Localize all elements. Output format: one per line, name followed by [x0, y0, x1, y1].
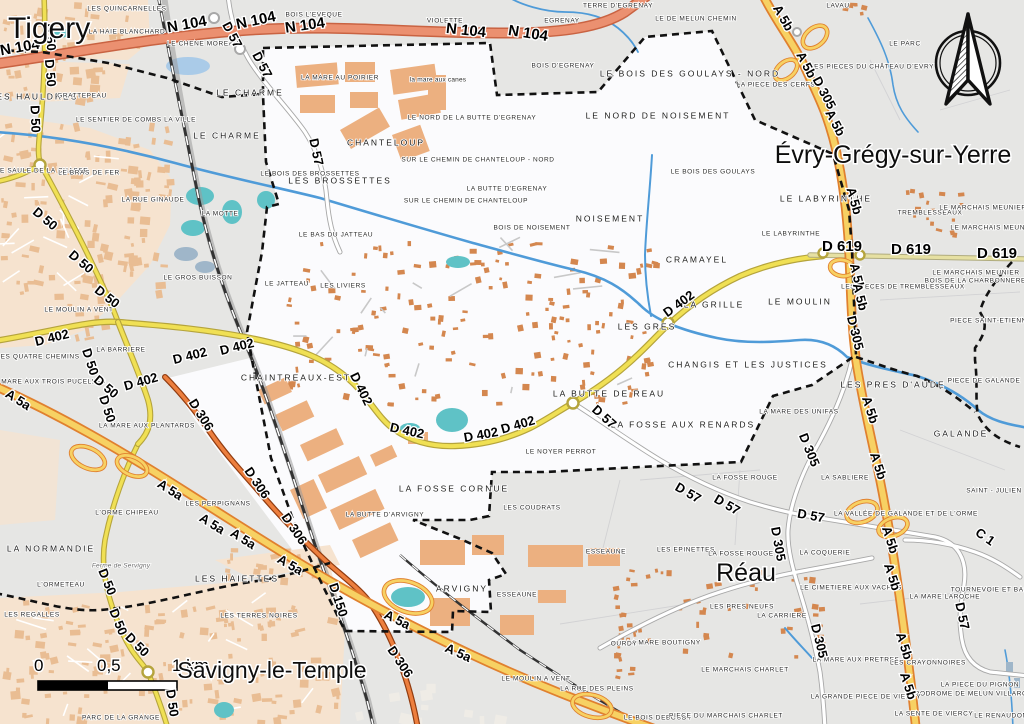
map-label: LA MOTTE — [202, 211, 239, 218]
scale-tick-05: 0,5 — [97, 656, 121, 675]
map-label: LA RUE DES PLEINS — [560, 686, 633, 693]
map-label: L'ORME CHIPEAU — [95, 510, 158, 517]
map-label: GALANDE — [934, 429, 989, 439]
map-label: LES LIVIERS — [320, 283, 366, 290]
map-label: LE SENTIER DE COMBS LA VILLE — [76, 117, 196, 124]
map-label: PIECE DU MARCHAIS CHARLET — [669, 713, 783, 720]
map-label: PARC DE LA GRANGE — [82, 715, 160, 722]
map-label: BOIS DE NOISEMENT — [493, 225, 570, 232]
map-label: CHANTELOUP — [347, 138, 425, 148]
map-label: LES PIECES DU CHÂTEAU D'EVRY — [810, 62, 934, 71]
map-label: AERODROME DE MELUN VILLAROCHE — [905, 691, 1024, 698]
map-label: PIECE SAINT-ETIENNE — [950, 318, 1024, 325]
map-label: LA BARRIERE — [96, 347, 145, 354]
map-label: SUR LE CHEMIN DE CHANTELOUP - NORD — [401, 157, 554, 164]
map-label: LES PRES D'AUDE — [840, 380, 945, 390]
map-label: LE MARCHAIS CHARLET — [701, 667, 789, 674]
map-label: LE DE MELUN CHEMIN — [655, 16, 737, 23]
map-label: la mare aux canes — [410, 77, 467, 84]
scale-tick-0: 0 — [34, 656, 43, 675]
map-label: BOIS D'EGRENAY — [532, 63, 595, 70]
map-label: LES QUINCARNELLES — [87, 6, 166, 13]
map-label: LE NORD DE NOISEMENT — [586, 111, 731, 121]
map-svg: 0 0,5 1 km LES QUINCARNELLESLA HAIE BLAN… — [0, 0, 1024, 724]
map-label: LA MARE LAROCHE — [910, 594, 980, 601]
map-label: LA RUE GINAUDE — [122, 197, 185, 204]
map-label: LA FOSSE ROUGE — [708, 551, 774, 558]
map-label: LA MARE AUX PLANTARDS — [99, 423, 195, 430]
map-label: LA MARE AUX TROIS PUCELLES — [0, 379, 106, 386]
map-label: LA PIECE DU PIGNON — [941, 682, 1019, 689]
map-label: LA BUTTE D'ARVIGNY — [346, 512, 424, 519]
map-label: LA MARE AUX PRETRES — [813, 657, 900, 664]
map-label: LE MOULIN A VENT — [44, 307, 113, 314]
map-label: D 619 — [891, 241, 931, 258]
map-label: LE BAS DU JATTEAU — [299, 232, 373, 239]
map-label: LE LABYRINTHE — [762, 231, 820, 238]
map-label: LE CHARME — [193, 131, 261, 141]
map-label: LES GRES — [618, 322, 677, 332]
map-label: LA MARE AU POIRIER — [301, 75, 379, 82]
map-label: ESSEAUNE — [586, 549, 626, 556]
map-label: LES QUATRE CHEMINS — [0, 354, 80, 361]
map-label: LES TERRES NOIRES — [220, 613, 297, 620]
map-label: Savigny-le-Temple — [177, 657, 366, 683]
map-canvas: 0 0,5 1 km LES QUINCARNELLESLA HAIE BLAN… — [0, 0, 1024, 724]
map-label: LE PARC — [889, 41, 921, 48]
map-label: SUR LE CHEMIN DE CHANTELOUP — [404, 198, 528, 205]
map-label: LA SENTE DE VIERCY — [895, 711, 974, 718]
map-label: D 619 — [977, 245, 1017, 262]
map-label: LA SABLIERE — [821, 475, 869, 482]
map-label: LE NORD DE LA BUTTE D'EGRENAY — [408, 115, 537, 122]
map-label: LES EPINETTES — [657, 547, 715, 554]
map-label: Évry-Grégy-sur-Yerre — [775, 140, 1012, 169]
map-label: GRATTEPEAU — [57, 93, 107, 100]
map-label: LA COQUERIE — [800, 550, 851, 557]
map-label: NOISEMENT — [576, 214, 645, 224]
map-label: D 50 — [42, 59, 59, 88]
map-label: OURDY — [611, 641, 638, 648]
map-label: LE BOIS DES GOULAYS - NORD — [600, 69, 780, 79]
map-label: LE MARCHAIS MEUNIER — [932, 270, 1019, 277]
map-label: TOURNEVOIE ET BASSIN — [951, 587, 1024, 594]
map-label: LE CIMETIERE AUX VACHES — [800, 585, 902, 592]
map-label: LE BRAS DE FER — [58, 170, 120, 177]
map-label: TERRE D'EGRENAY — [583, 3, 653, 10]
map-label: LE MOULIN — [768, 297, 832, 307]
map-label: CHAINTREAUX-EST — [241, 373, 351, 383]
map-label: LA HAIE BLANCHARD — [89, 29, 166, 36]
map-label: LES PRES NEUFS — [710, 604, 774, 611]
map-label: LES COUDRATS — [503, 505, 560, 512]
map-label: Ferme de Servigny — [92, 563, 151, 570]
map-label: ARVIGNY — [436, 584, 488, 594]
map-label: D 619 — [822, 238, 862, 255]
map-label: SAINT - JULIEN — [966, 488, 1022, 495]
map-label: LA NORMANDIE — [7, 544, 95, 554]
map-label: LE CHARME — [216, 88, 284, 98]
map-label: LA FOSSE CORNUE — [399, 484, 509, 494]
map-label: D 50 — [28, 105, 44, 133]
map-label: LES REGALLES — [4, 612, 60, 619]
map-label: PIECE DE GALANDE — [948, 378, 1021, 385]
map-label: Réau — [716, 559, 776, 587]
map-label: LES HAIETTES — [195, 574, 279, 584]
map-label: LE MOULIN A VENT — [501, 676, 570, 683]
map-label: LE GROS BUISSON — [164, 275, 233, 282]
map-label: L'ORMETEAU — [37, 582, 85, 589]
map-label: ESSEAUNE — [497, 592, 537, 599]
map-label: LA PIECE DES CERFS — [737, 82, 816, 89]
map-label: CRAMAYEL — [666, 255, 728, 265]
map-label: LE BOIS DES BROSSETTES — [260, 171, 359, 178]
map-label: LE BOIS DES GOULAYS — [671, 169, 756, 176]
map-label: LA BUTTE D'EGRENAY — [467, 186, 548, 193]
map-label: LE NOYER PERROT — [526, 449, 597, 456]
map-label: LE RENAUDON — [974, 713, 1024, 720]
map-label: LAVAU — [826, 3, 849, 10]
map-label: EGRENAY — [544, 18, 580, 25]
map-label: Tigery — [8, 12, 90, 45]
map-label: LA MARE DES UNIFAS — [759, 409, 838, 416]
map-label: LE MARCHAIS MEUNIER — [939, 205, 1024, 212]
map-label: LE JATTEAU — [265, 281, 309, 288]
map-label: LE MARCHAIS MEUNIER — [950, 225, 1024, 232]
map-label: LES PERPIGNANS — [185, 501, 250, 508]
map-label: LA BUTTE DE REAU — [553, 389, 665, 399]
map-label: CHANGIS ET LES JUSTICES — [668, 360, 828, 370]
map-label: LA FOSSE ROUGE — [712, 475, 778, 482]
map-label: LA FOSSE AUX RENARDS — [611, 420, 755, 430]
map-label: LA VALLÉE DE GALANDE ET DE L'ORME — [834, 509, 978, 518]
map-label: LA CARRIERE — [757, 613, 807, 620]
map-label: LA MARE BOUTIGNY — [627, 640, 701, 647]
